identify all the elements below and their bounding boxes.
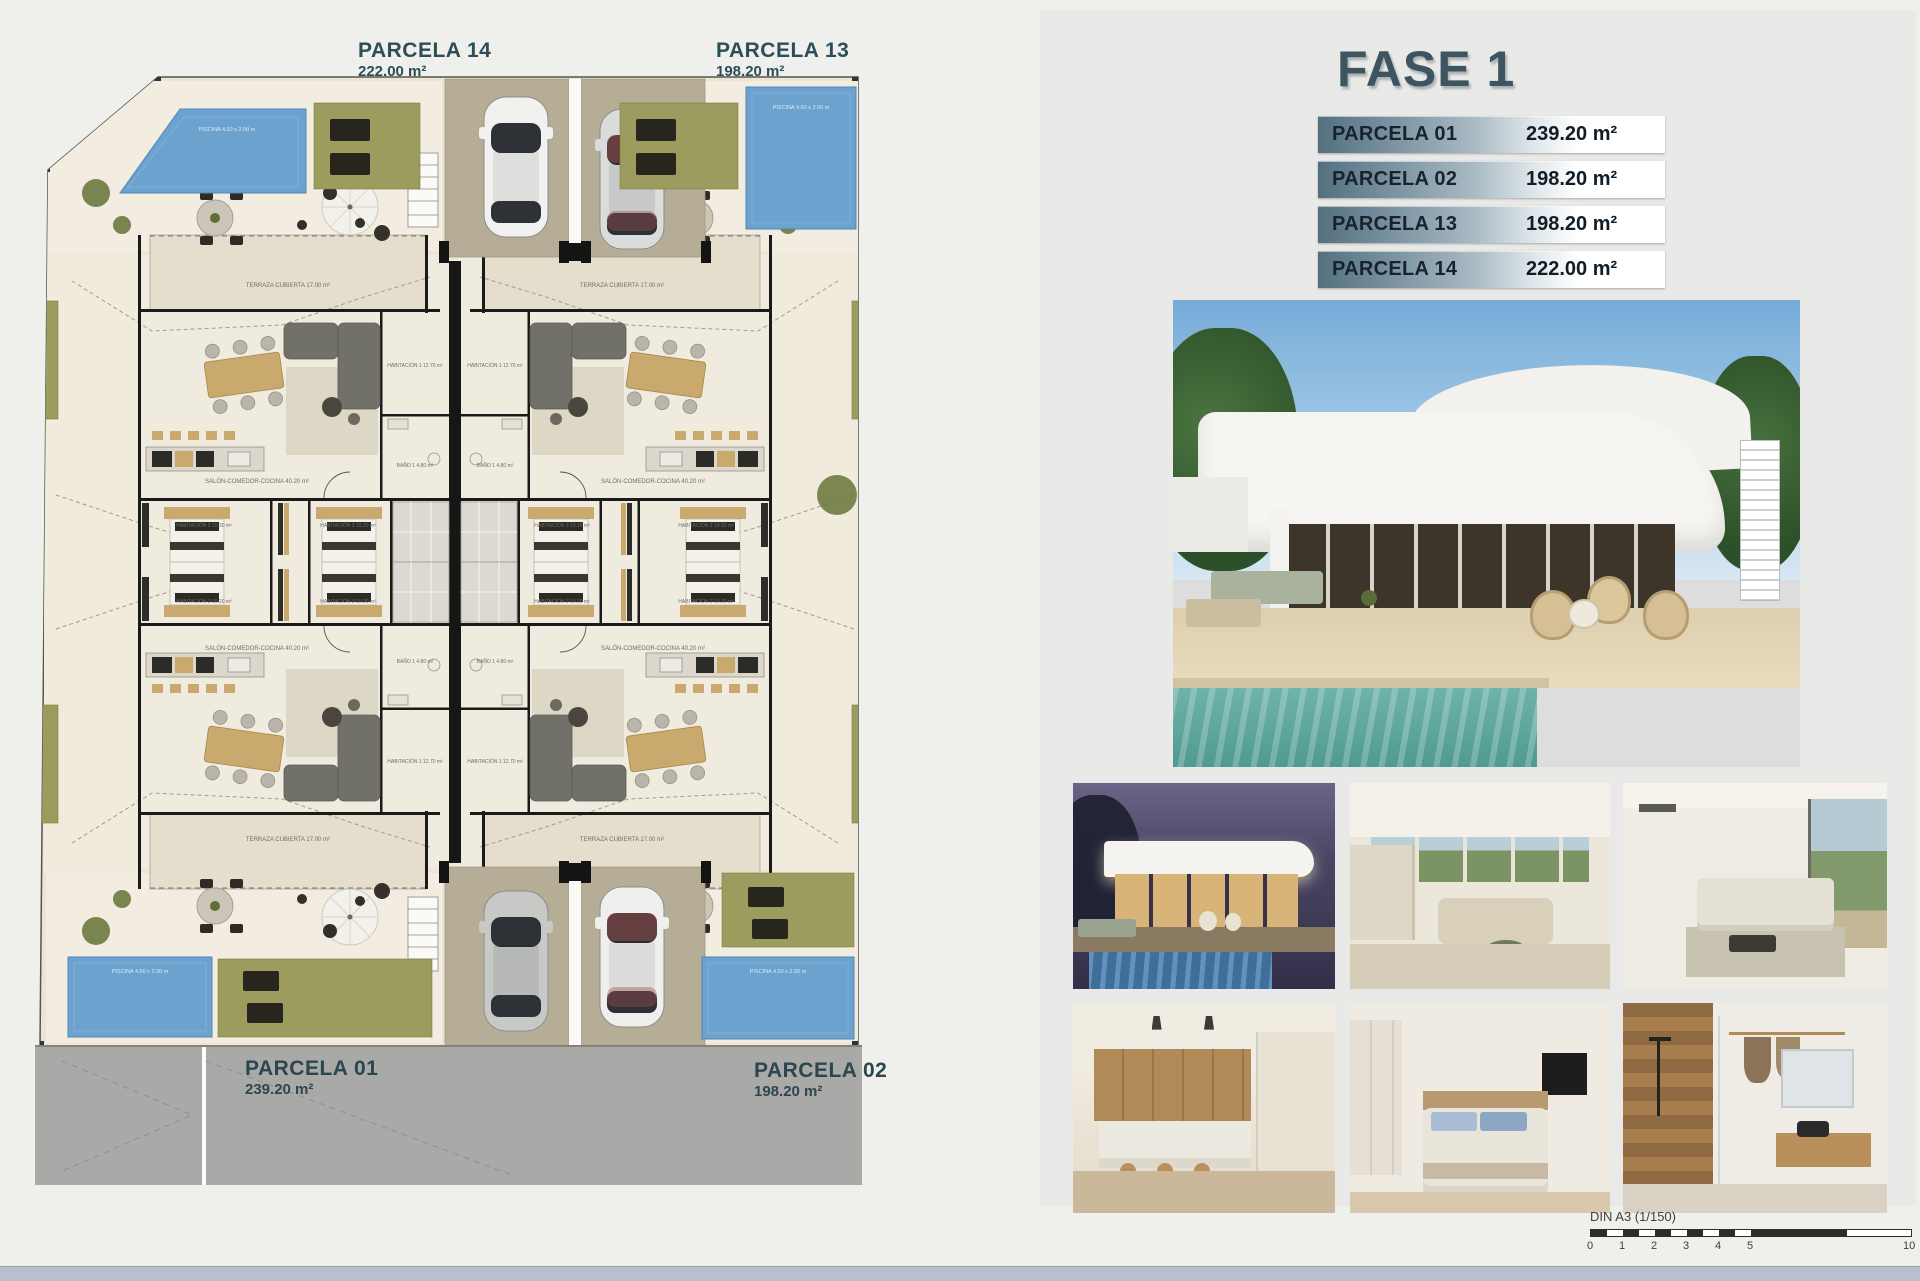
scalebar-tick: 4: [1715, 1240, 1721, 1252]
grass-bottom-left: [218, 959, 432, 1037]
room-label-hab2: HABITACIÓN 2 10.20 m²: [176, 598, 232, 605]
photo-bathroom: [1623, 1003, 1887, 1213]
room-label-bano1: BAÑO 1 4.80 m²: [397, 658, 434, 665]
night-roof-led: [1104, 841, 1314, 877]
staircase: [1740, 440, 1780, 601]
room-label-hab1: HABITACIÓN 1 12.70 m²: [467, 362, 523, 369]
shower-head: [1649, 1037, 1671, 1041]
room-label-salon: SALÓN-COMEDOR-COCINA 40.20 m²: [205, 645, 309, 652]
wardrobe: [1350, 1020, 1402, 1175]
pool-label-tr: PISCINA 4.50 x 2.00 m: [773, 105, 830, 111]
pool-label-bl: PISCINA 4.50 x 2.00 m: [112, 969, 169, 975]
street-band: [35, 1045, 862, 1185]
page-title: FASE 1: [1337, 40, 1515, 98]
row-label: PARCELA 13: [1332, 213, 1457, 236]
scalebar: [1590, 1229, 1912, 1237]
table-row-parcela-14: PARCELA 14 222.00 m²: [1318, 251, 1665, 288]
wicker-chair-3: [1643, 590, 1689, 640]
scalebar-tick: 3: [1683, 1240, 1689, 1252]
row-area: 222.00 m²: [1526, 258, 1617, 281]
basin: [1797, 1121, 1829, 1138]
villa-left-wing: [1173, 477, 1248, 552]
car-white-red-bottom: [595, 887, 669, 1027]
plant-pot: [1361, 590, 1377, 606]
row-label: PARCELA 02: [1332, 168, 1457, 191]
room-label-hab2: HABITACIÓN 2 10.20 m²: [678, 522, 734, 529]
table-row-parcela-13: PARCELA 13 198.20 m²: [1318, 206, 1665, 243]
photo-bedroom: [1350, 1003, 1610, 1213]
night-pool: [1089, 952, 1272, 989]
night-sofa: [1078, 919, 1136, 938]
car-white-top: [479, 97, 553, 237]
vanity-counter: [1776, 1133, 1871, 1167]
room-label-terraza: TERRAZA CUBIERTA 17.00 m²: [580, 837, 664, 843]
scalebar-tick: 5: [1747, 1240, 1753, 1252]
right-wall: [1256, 1032, 1335, 1171]
row-label: PARCELA 14: [1332, 258, 1457, 281]
photo-living-room: [1623, 783, 1887, 989]
terrace-floor: [1173, 608, 1800, 687]
sun-lounger: [1186, 599, 1261, 627]
car-silver-bottom: [479, 891, 553, 1031]
scalebar-tick: 10: [1903, 1240, 1915, 1252]
room-label-salon: SALÓN-COMEDOR-COCINA 40.20 m²: [205, 478, 309, 485]
room-label-hab3: HABITACIÓN 3 10.20 m²: [320, 598, 376, 605]
pool-label-br: PISCINA 4.50 x 2.00 m: [750, 969, 807, 975]
glass-panel: [1718, 1016, 1720, 1184]
wood-wall: [1623, 1003, 1713, 1213]
grass-top-left: [314, 103, 420, 189]
room-label-hab2: HABITACIÓN 2 10.20 m²: [678, 598, 734, 605]
scalebar-tick: 2: [1651, 1240, 1657, 1252]
parcela-01-name: PARCELA 01: [245, 1058, 378, 1080]
photo-night-exterior: [1073, 783, 1335, 989]
ac-grille: [1639, 804, 1676, 812]
table-row-parcela-01: PARCELA 01 239.20 m²: [1318, 116, 1665, 153]
floor: [1350, 944, 1610, 989]
room-label-terraza: TERRAZA CUBIERTA 17.00 m²: [580, 283, 664, 289]
footer-strip: [0, 1266, 1920, 1281]
room-label-hab3: HABITACIÓN 3 10.20 m²: [534, 522, 590, 529]
site-floor-plan: PISCINA 4.50 x 2.00 m PISCINA 4.50 x 2.0…: [32, 75, 862, 1185]
room-label-salon: SALÓN-COMEDOR-COCINA 40.20 m²: [601, 645, 705, 652]
room-label-hab1: HABITACIÓN 1 12.70 m²: [387, 362, 443, 369]
room-label-hab1: HABITACIÓN 1 12.70 m²: [467, 758, 523, 765]
room-label-hab3: HABITACIÓN 3 10.20 m²: [534, 598, 590, 605]
coat-rail: [1729, 1032, 1845, 1035]
floor: [1073, 1171, 1335, 1213]
plan-label-parcela-13: PARCELA 13 198.20 m²: [716, 40, 849, 80]
hanging-robe-1: [1744, 1037, 1770, 1083]
tv-screen: [1542, 1053, 1586, 1095]
room-label-hab1: HABITACIÓN 1 12.70 m²: [387, 758, 443, 765]
shower-fixture: [1657, 1041, 1660, 1117]
room-label-bano1: BAÑO 1 4.80 m²: [477, 658, 514, 665]
plan-label-parcela-14: PARCELA 14 222.00 m²: [358, 40, 491, 80]
coffee-table: [1729, 935, 1777, 951]
kitchen-counter: [1350, 845, 1415, 940]
pool-water: [1173, 688, 1537, 767]
plan-label-parcela-01: PARCELA 01 239.20 m²: [245, 1058, 378, 1098]
outdoor-table: [1568, 599, 1600, 629]
tree-right-edge: [817, 475, 857, 515]
mirror: [1781, 1049, 1854, 1108]
grass-top-right: [620, 103, 738, 189]
pillow-1: [1431, 1112, 1478, 1131]
room-label-terraza: TERRAZA CUBIERTA 17.00 m²: [246, 837, 330, 843]
sofa: [1438, 898, 1552, 943]
parcela-02-area: 198.20 m²: [754, 1084, 887, 1100]
bed-throw: [1423, 1163, 1548, 1180]
room-label-terraza: TERRAZA CUBIERTA 17.00 m²: [246, 283, 330, 289]
night-chair-1: [1199, 911, 1217, 931]
scalebar-tick: 1: [1619, 1240, 1625, 1252]
parcela-01-area: 239.20 m²: [245, 1082, 378, 1098]
night-chair-2: [1225, 913, 1241, 931]
pool-coping: [1173, 678, 1549, 687]
parcela-02-name: PARCELA 02: [754, 1060, 887, 1082]
photo-kitchen-dining: [1073, 1003, 1335, 1213]
plan-label-parcela-02: PARCELA 02 198.20 m²: [754, 1060, 887, 1100]
row-area: 198.20 m²: [1526, 213, 1617, 236]
row-label: PARCELA 01: [1332, 123, 1457, 146]
scalebar-tick: 0: [1587, 1240, 1593, 1252]
room-label-hab2: HABITACIÓN 2 10.20 m²: [176, 522, 232, 529]
room-label-hab3: HABITACIÓN 3 10.20 m²: [320, 522, 376, 529]
wood-cabinets: [1094, 1049, 1251, 1120]
room-label-salon: SALÓN-COMEDOR-COCINA 40.20 m²: [601, 478, 705, 485]
room-label-bano1: BAÑO 1 4.80 m²: [477, 462, 514, 469]
parcela-13-name: PARCELA 13: [716, 40, 849, 62]
parcela-14-name: PARCELA 14: [358, 40, 491, 62]
pool-label-tl: PISCINA 4.50 x 2.00 m: [199, 127, 256, 133]
row-area: 198.20 m²: [1526, 168, 1617, 191]
scalebar-label: DIN A3 (1/150): [1590, 1209, 1676, 1224]
ceiling: [1350, 783, 1610, 837]
pillow-2: [1480, 1112, 1527, 1131]
photo-living-kitchen: [1350, 783, 1610, 989]
row-area: 239.20 m²: [1526, 123, 1617, 146]
room-label-bano1: BAÑO 1 4.80 m²: [397, 462, 434, 469]
table-row-parcela-02: PARCELA 02 198.20 m²: [1318, 161, 1665, 198]
grass-bottom-right: [722, 873, 854, 947]
corner-sofa: [1697, 878, 1834, 932]
floor: [1350, 1192, 1610, 1213]
island-counter: [1099, 1121, 1251, 1169]
main-villa-render-photo: [1173, 300, 1800, 767]
